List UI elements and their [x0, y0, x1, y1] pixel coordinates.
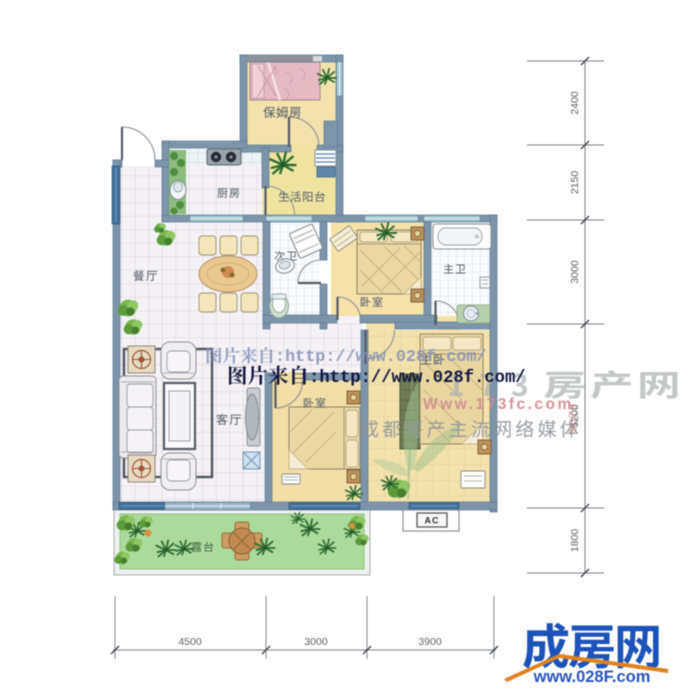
- svg-text:3000: 3000: [304, 636, 328, 648]
- svg-text:4500: 4500: [178, 636, 202, 648]
- svg-text:8Z0S: 8Z0S: [566, 404, 578, 434]
- svg-text:2150: 2150: [569, 171, 581, 195]
- svg-text::http://www.028f.com/: :http://www.028f.com/: [275, 348, 486, 367]
- svg-text:www.028F.com: www.028F.com: [533, 668, 651, 686]
- svg-text:2400: 2400: [569, 91, 581, 115]
- svg-text:Www.173fc.com: Www.173fc.com: [423, 396, 574, 413]
- svg-text:1800: 1800: [569, 529, 581, 553]
- svg-text:3000: 3000: [569, 260, 581, 284]
- svg-text:3900: 3900: [418, 636, 442, 648]
- svg-text::http://www.028f.com/: :http://www.028f.com/: [309, 369, 526, 388]
- svg-text:AC: AC: [425, 516, 440, 526]
